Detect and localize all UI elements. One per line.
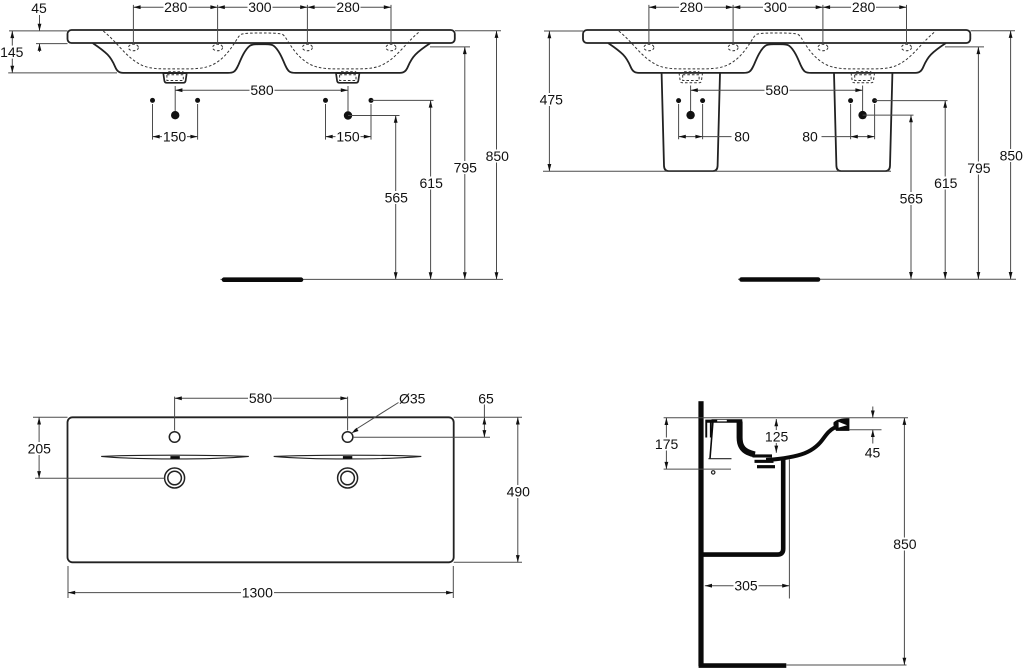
- svg-text:580: 580: [765, 82, 789, 98]
- svg-text:490: 490: [507, 483, 531, 499]
- svg-text:300: 300: [764, 0, 788, 15]
- svg-text:45: 45: [31, 0, 47, 16]
- svg-text:795: 795: [454, 160, 478, 176]
- svg-text:850: 850: [1000, 148, 1024, 164]
- svg-text:565: 565: [900, 191, 924, 207]
- svg-text:580: 580: [249, 390, 273, 406]
- svg-text:205: 205: [28, 440, 52, 456]
- svg-text:850: 850: [893, 536, 917, 552]
- svg-text:280: 280: [164, 0, 188, 15]
- svg-text:615: 615: [420, 175, 444, 191]
- svg-text:280: 280: [852, 0, 876, 15]
- svg-text:Ø35: Ø35: [399, 391, 426, 407]
- svg-text:175: 175: [655, 436, 679, 452]
- svg-text:795: 795: [967, 160, 991, 176]
- svg-text:150: 150: [163, 129, 187, 145]
- svg-text:565: 565: [385, 190, 409, 206]
- svg-text:65: 65: [478, 391, 494, 407]
- svg-text:125: 125: [765, 428, 789, 444]
- svg-text:145: 145: [0, 44, 24, 60]
- svg-text:615: 615: [934, 175, 958, 191]
- svg-text:475: 475: [540, 91, 564, 107]
- svg-text:80: 80: [802, 128, 818, 144]
- svg-text:280: 280: [336, 0, 360, 15]
- svg-text:150: 150: [336, 129, 360, 145]
- svg-text:300: 300: [248, 0, 272, 15]
- svg-text:305: 305: [734, 578, 758, 594]
- svg-text:1300: 1300: [242, 585, 273, 601]
- svg-text:580: 580: [250, 82, 274, 98]
- svg-text:80: 80: [734, 128, 750, 144]
- svg-text:850: 850: [486, 148, 510, 164]
- svg-text:280: 280: [680, 0, 704, 15]
- svg-text:45: 45: [865, 445, 881, 461]
